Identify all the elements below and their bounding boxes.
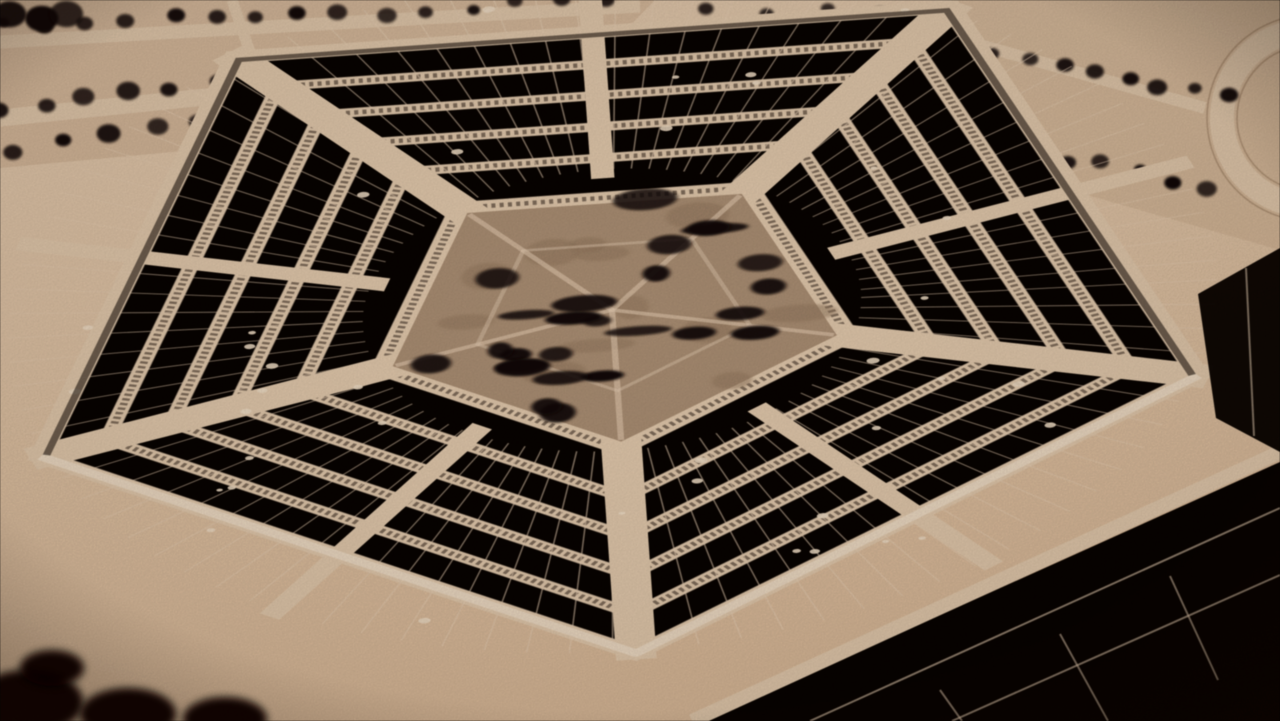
- pentagon-aerial-photograph: [0, 0, 1280, 721]
- film-grain-overlay: [0, 0, 1280, 721]
- photo-frame: [0, 0, 1280, 721]
